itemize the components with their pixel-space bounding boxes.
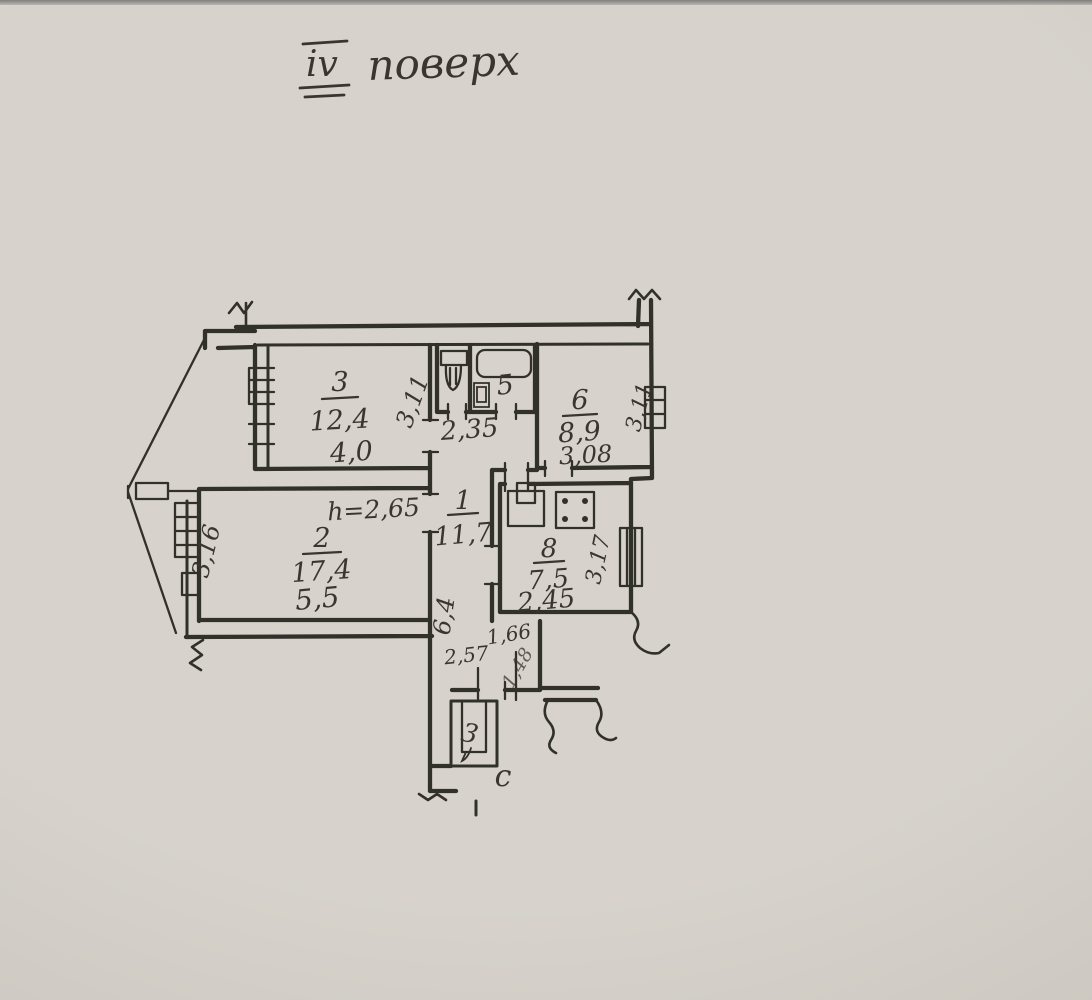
bay-outline xyxy=(128,336,206,633)
room2-number: 2 xyxy=(312,523,330,554)
room3-area: 12,4 xyxy=(309,403,371,437)
room8-number: 8 xyxy=(541,534,558,564)
stove-burner-icon xyxy=(582,498,588,504)
scanned-floor-plan-page: IV поверх 3 12,4 xyxy=(0,0,1092,1000)
stove-burner-icon xyxy=(582,516,588,522)
room3-number: 3 xyxy=(331,367,348,398)
walls-primary xyxy=(186,300,652,791)
room8-width-dim: 2,45 xyxy=(515,584,576,619)
title-word: поверх xyxy=(367,36,521,90)
hall-width-dim: 2,35 xyxy=(439,413,500,447)
bath-sink-icon xyxy=(474,383,489,407)
entry-dim-a: 1,66 xyxy=(485,619,533,650)
entry-dim-c: 1,48 xyxy=(498,644,538,692)
room8-depth-dim: 3,17 xyxy=(581,533,616,586)
room1-number: 1 xyxy=(455,486,472,516)
room3-width-dim: 4,0 xyxy=(328,436,374,470)
balcony-mark-arrow xyxy=(462,748,471,761)
bath-number: 5 xyxy=(495,369,515,402)
room1-area: 11,7 xyxy=(433,518,494,553)
north-label: с xyxy=(495,759,512,794)
window-room3 xyxy=(249,368,274,444)
room6-number: 6 xyxy=(571,385,588,416)
stove-burner-icon xyxy=(562,516,568,522)
corridor-length-dim: 6,4 xyxy=(428,595,461,637)
title-roman: IV xyxy=(306,44,338,85)
floor-plan-svg: IV поверх 3 12,4 xyxy=(0,0,1092,1000)
stove-burner-icon xyxy=(562,498,568,504)
room6-width-dim: 3,08 xyxy=(558,440,613,471)
room2-width-dim: 5,5 xyxy=(294,580,341,617)
toilet-icon xyxy=(441,351,467,390)
ceiling-height-note: h=2,65 xyxy=(327,493,421,527)
entry-dim-b: 2,57 xyxy=(442,641,490,670)
kitchen-sink-icon xyxy=(508,483,544,526)
stove-icon xyxy=(556,492,594,528)
